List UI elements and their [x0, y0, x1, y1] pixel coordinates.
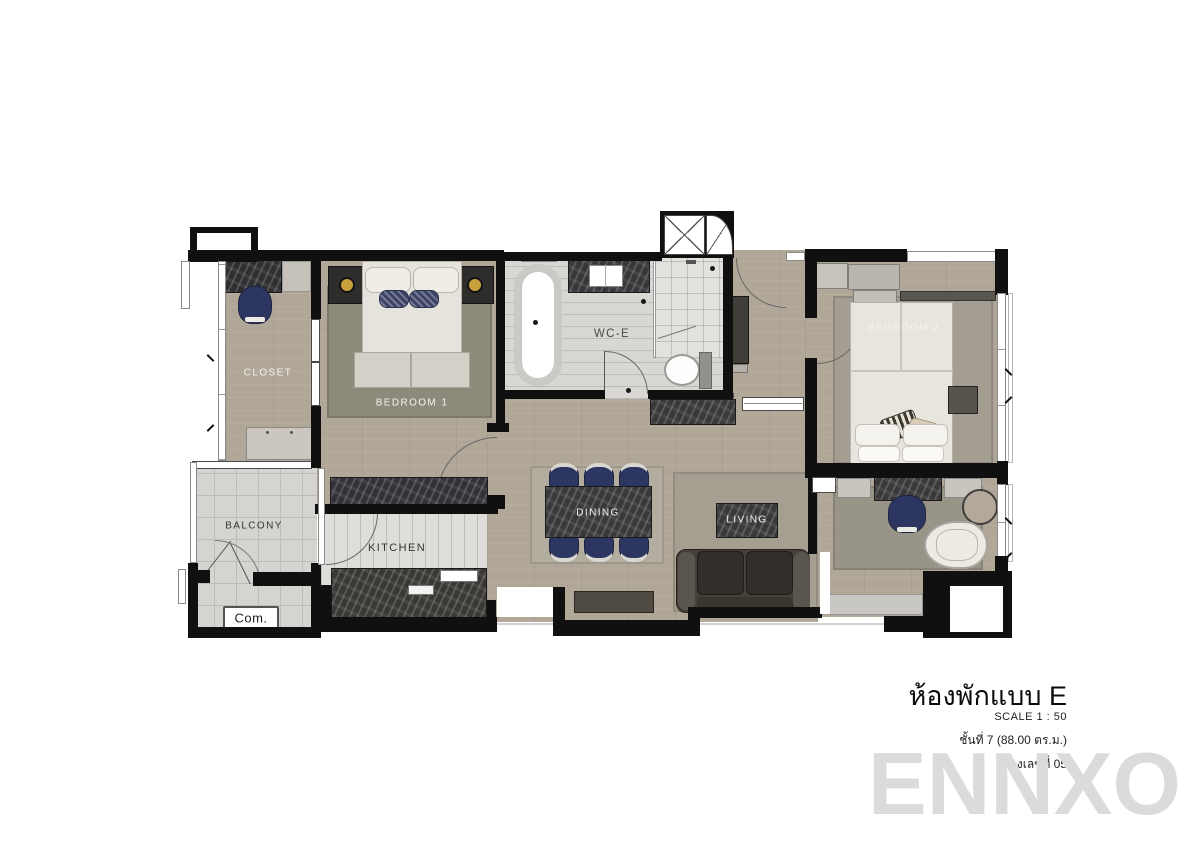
wall-opening: [820, 552, 830, 614]
lamp-icon: [339, 277, 355, 293]
wall: [884, 616, 930, 632]
balcony-floor: [192, 462, 317, 628]
window: [997, 484, 1006, 562]
bed2-duvet-divider: [900, 302, 902, 372]
toilet-tank: [699, 352, 712, 389]
window: [907, 251, 997, 262]
wall: [197, 570, 210, 583]
lamp-icon: [467, 277, 483, 293]
bed2-pillow: [902, 446, 944, 462]
wall: [504, 252, 662, 261]
round-side-table: [962, 489, 998, 525]
balcony-rail: [190, 462, 197, 563]
scale-note: SCALE 1 : 50: [767, 711, 1067, 723]
dining-chair: [549, 536, 579, 562]
door-stop-dot: [641, 299, 646, 304]
hall-sliding-door-track: [744, 403, 802, 404]
wall: [487, 423, 509, 432]
dining-chair: [584, 536, 614, 562]
floor-plan-sheet: Com.: [0, 0, 1200, 849]
closet-label: CLOSET: [244, 368, 292, 379]
bed1-bench: [354, 352, 470, 388]
study-side-mat: [837, 478, 871, 498]
armchair-inner-line: [936, 529, 978, 561]
wall: [311, 406, 321, 468]
window: [786, 252, 805, 261]
watermark: ENNXO: [868, 740, 1181, 828]
wall: [553, 620, 690, 636]
wall: [487, 495, 496, 513]
closet-door-leaf: [311, 362, 320, 406]
cabinet-knob: [290, 431, 293, 434]
bedroom1-tv-console: [330, 477, 488, 505]
door-stop-dot: [626, 388, 631, 393]
compressor-label: Com.: [234, 611, 267, 626]
vanity-sink-divider: [605, 265, 606, 287]
wall: [496, 495, 505, 509]
sofa-cushion: [697, 551, 744, 595]
shower-glass-panel: [653, 258, 656, 358]
wall: [553, 587, 565, 622]
sofa-arm-right: [793, 552, 810, 610]
cabinet-knob: [266, 431, 269, 434]
closet-cabinet: [246, 427, 312, 460]
bathtub-drain: [533, 320, 538, 325]
balcony-kitchen-glass: [318, 468, 325, 565]
exterior-notch: [497, 587, 553, 617]
wall: [805, 252, 817, 318]
curtain-pelmet: [900, 291, 996, 301]
window: [997, 293, 1006, 463]
corridor-console: [650, 399, 736, 425]
closet-door-leaf: [311, 319, 320, 362]
shower-head-icon: [686, 260, 696, 264]
wall: [253, 572, 318, 586]
wall: [698, 607, 822, 618]
wall: [188, 627, 318, 638]
window-tick: [207, 424, 215, 432]
kitchen-stove: [408, 585, 434, 595]
wc-door-leaf: [604, 351, 605, 394]
window: [181, 261, 190, 309]
wall: [496, 261, 505, 431]
window: [178, 569, 186, 604]
wall: [487, 600, 496, 618]
wall: [315, 504, 498, 514]
bathtub: [514, 264, 562, 386]
wall: [505, 390, 605, 399]
closet-chair-seat-edge: [245, 317, 265, 322]
entrance-door-icon: [664, 215, 705, 255]
kitchen-sink: [440, 570, 478, 582]
hall-sliding-door: [742, 397, 804, 411]
door-stop-dot: [710, 266, 715, 271]
closet-side-mat: [282, 261, 311, 292]
bed1-bench-divider: [410, 352, 412, 388]
kitchen-label: KITCHEN: [368, 542, 426, 554]
wall: [805, 249, 907, 262]
wc-label: WC-E: [594, 328, 630, 340]
bedroom2-label: BEDROOM 2: [868, 323, 941, 334]
bedroom1-label: BEDROOM 1: [376, 398, 449, 409]
bed2-pillow: [903, 424, 948, 446]
vanity-sink: [589, 265, 623, 287]
balcony-threshold-window: [192, 461, 312, 469]
wall: [648, 390, 723, 399]
wall: [311, 617, 497, 632]
living-label: LIVING: [726, 515, 767, 526]
wall: [311, 250, 321, 319]
bed1-cushion: [379, 290, 409, 308]
sofa-cushion: [746, 551, 793, 595]
sofa-arm-left: [678, 552, 695, 610]
toilet-bowl: [664, 354, 700, 386]
window-sill: [1008, 293, 1013, 463]
wall: [188, 250, 504, 261]
dining-sideboard: [574, 591, 654, 613]
bed1-cushion: [409, 290, 439, 308]
wall: [995, 249, 1008, 295]
bed2-pillow: [855, 424, 900, 446]
shower-floor: [655, 258, 723, 358]
unit-type-title: ห้องพักแบบ E: [767, 682, 1067, 710]
bed2-nightstand: [948, 386, 978, 414]
study-chair-seat-edge: [897, 527, 917, 532]
balcony-label: BALCONY: [225, 521, 283, 532]
wall: [805, 463, 1000, 478]
bed2-pillow: [858, 446, 900, 462]
wardrobe: [848, 264, 900, 290]
study-pocket-door: [812, 477, 836, 493]
shaft-void: [950, 586, 1003, 632]
wall: [805, 358, 817, 465]
dining-chair: [619, 536, 649, 562]
closet-window-wall: [218, 261, 226, 461]
wall: [723, 255, 733, 399]
window-tick: [207, 354, 215, 362]
dining-label: DINING: [576, 508, 619, 519]
study-window-bench: [827, 594, 923, 615]
